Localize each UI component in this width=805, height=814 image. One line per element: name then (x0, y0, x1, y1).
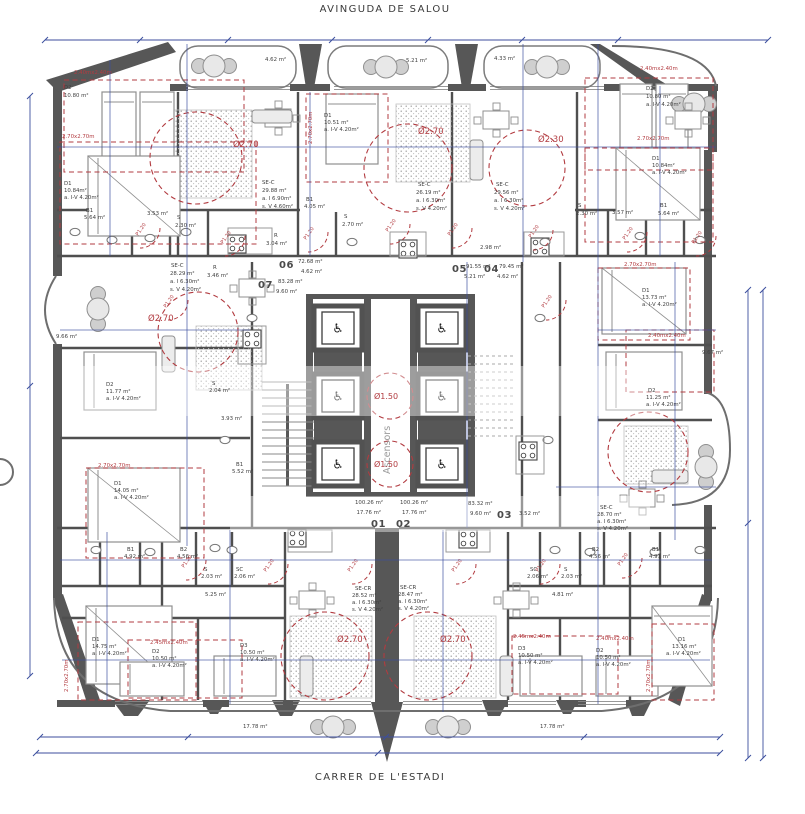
wheelchair-icon: ♿ (332, 321, 343, 336)
room-label: 5.25 m² (205, 591, 226, 598)
red-annotation-label: 2.40mx2.40m (596, 636, 634, 642)
room-label: 9.66 m² (56, 333, 77, 340)
wall (170, 84, 188, 91)
bath-fixture (91, 546, 101, 553)
balcony-curve (0, 459, 13, 485)
room-label: 4.62 m² (497, 273, 518, 280)
red-annotation-label: Ø2.30 (538, 134, 564, 145)
wall (57, 700, 115, 707)
room-label: 5.52 m² (232, 468, 253, 475)
room-label: 9.67 m² (702, 349, 723, 356)
bath-fixture (210, 544, 220, 551)
room-label: D1 (114, 481, 122, 487)
wall (272, 700, 300, 716)
room-label: 83.28 m² (278, 278, 303, 285)
room-label: 5.21 m² (406, 57, 427, 64)
chair (657, 495, 664, 502)
room-label: 4.62 m² (301, 268, 322, 275)
round-table (536, 56, 558, 78)
room-label: S (204, 567, 208, 573)
room-label: s. V 4.20m² (352, 606, 383, 613)
chair (511, 117, 518, 124)
room-label: S (177, 215, 181, 221)
bed (140, 92, 174, 164)
room-label: SE-C (171, 263, 184, 269)
room-label: D2 (596, 648, 604, 654)
room-label: 13.73 m² (642, 294, 667, 301)
room-label: 13.16 m² (672, 643, 697, 650)
room-label: a. I 6.30m² (597, 518, 626, 525)
room-label: 4.56 m² (177, 553, 198, 560)
room-label: 17.76 m² (402, 509, 427, 516)
room-label: 10.84m² (652, 162, 675, 169)
chair (494, 597, 501, 604)
room-label: a. I-V 4.20m² (666, 650, 701, 657)
red-annotation-label: 2.70x2.70m (98, 463, 130, 469)
room-label: a. I 6.30m² (352, 599, 381, 606)
dining-table (503, 591, 529, 609)
chair (290, 597, 297, 604)
room-label: D2 (152, 649, 160, 655)
room-label: 72.68 m² (298, 258, 323, 265)
room-label: 3.52 m² (519, 510, 540, 517)
room-label: SE-C (600, 505, 613, 511)
round-table (87, 298, 109, 320)
clearance-label: P1.20 (622, 226, 635, 241)
clearance-label: P1.20 (447, 222, 460, 237)
bath-fixture (635, 232, 645, 239)
room-label: s. V 4.20m² (597, 525, 628, 532)
room-label: a. I-V 4.20m² (646, 101, 681, 108)
chair (327, 597, 334, 604)
room-label: 5.64 m² (84, 214, 105, 221)
wall (418, 420, 466, 440)
round-table (322, 716, 344, 738)
dining-table (299, 591, 325, 609)
red-annotation-label: 2.40mx2.40m (74, 70, 112, 76)
room-label: B1 (236, 462, 243, 468)
sofa (500, 656, 513, 696)
room-label: SC (530, 567, 537, 573)
dining-table (675, 111, 701, 129)
room-label: a. I-V 4.20m² (518, 659, 553, 666)
sofa (470, 140, 483, 180)
room-label: 29.56 m² (494, 189, 519, 196)
wall (455, 44, 478, 88)
room-label: 100.26 m² (400, 499, 428, 506)
room-label: D2 (106, 382, 114, 388)
room-label: 2.06 m² (527, 573, 548, 580)
clearance-label: P1.20 (541, 294, 554, 309)
room-label: a. I-V 4.20m² (92, 650, 127, 657)
red-annotation-label: Ø2.70 (337, 634, 363, 645)
wall (314, 420, 362, 440)
wall (53, 344, 62, 600)
room-label: B2 (592, 547, 599, 553)
round-table (437, 716, 459, 738)
room-label: 28.47 m² (398, 591, 423, 598)
room-label: a. I-V 4.20m² (652, 169, 687, 176)
room-label: SE-C (262, 180, 275, 186)
room-label: D1 (324, 113, 332, 119)
room-label: 2.30 m² (576, 210, 597, 217)
room-label: D2 (648, 388, 656, 394)
room-label: 5.64 m² (658, 210, 679, 217)
room-label: 28.70 m² (597, 511, 622, 518)
room-label: a. I-V 4.20m² (106, 395, 141, 402)
room-label: 29.88 m² (262, 187, 287, 194)
room-label: 2.98 m² (480, 244, 501, 251)
red-annotation-label: 2.40mx2.40m (640, 66, 678, 72)
room-label: 4.62 m² (265, 56, 286, 63)
chair (230, 285, 237, 292)
room-label: a. I-V 4.20m² (642, 301, 677, 308)
red-annotation-label: 2.70x2.70m (646, 660, 652, 692)
chair (493, 130, 500, 137)
room-label: D1 (652, 156, 660, 162)
chair (493, 103, 500, 110)
wall (306, 294, 475, 299)
room-label: 10.50 m² (596, 654, 621, 661)
dining-table (483, 111, 509, 129)
chair (309, 583, 316, 590)
chair (474, 117, 481, 124)
room-label: a. I 6.30m² (398, 598, 427, 605)
chair (513, 610, 520, 617)
room-label: 3.57 m² (612, 209, 633, 216)
wheelchair-icon: ♿ (332, 457, 343, 472)
room-label: 10.80 m² (64, 92, 89, 99)
room-label: S (564, 567, 568, 573)
room-label: a. I 6.30m² (170, 278, 199, 285)
room-label: a. I 6.90m² (262, 195, 291, 202)
wheelchair-icon: ♿ (436, 321, 447, 336)
room-label: 4.56 m² (589, 553, 610, 560)
wall (704, 150, 712, 394)
round-table (695, 456, 717, 478)
room-label: SE-C (496, 182, 509, 188)
room-label: s. V 4.20m² (494, 205, 525, 212)
red-annotation-label: 2.45mx2.40m (513, 634, 551, 640)
bath-fixture (227, 546, 237, 553)
watermark-wash (80, 366, 660, 416)
room-label: SE-CR (355, 586, 372, 592)
room-label: 3.04 m² (266, 240, 287, 247)
bed (102, 92, 136, 164)
room-label: s. V 4.20m² (416, 205, 447, 212)
room-label: 14.75 m² (92, 643, 117, 650)
unit-number-label: 06 (279, 260, 294, 271)
room-label: a. I-V 4.20m² (324, 126, 359, 133)
room-label: B1 (652, 547, 659, 553)
floor-plan-drawing: ♿♿♿♿♿♿P1.20P1.20P1.20P1.20P1.20P1.20P1.2… (0, 0, 805, 814)
bath-fixture (695, 546, 705, 553)
room-label: R (213, 265, 217, 271)
room-label: a. I-V 4.20m² (152, 662, 187, 669)
room-label: 3.53 m² (147, 210, 168, 217)
room-label: 9.60 m² (470, 510, 491, 517)
clearance-label: P1.20 (163, 294, 176, 309)
clearance-label: P1.20 (303, 226, 316, 241)
red-annotation-label: 2.70x2.70m (62, 134, 94, 140)
room-label: 3.93 m² (221, 415, 242, 422)
sofa (300, 656, 313, 696)
room-label: 4.05 m² (304, 203, 325, 210)
room-label: s. V 4.20m² (170, 286, 201, 293)
bath-fixture (145, 548, 155, 555)
room-label: B2 (180, 547, 187, 553)
chair (531, 597, 538, 604)
room-label: s. V 4.20m² (398, 605, 429, 612)
bath-fixture (220, 436, 230, 443)
red-annotation-label: 2.70x2.70m (64, 660, 70, 692)
room-label: D1 (678, 637, 686, 643)
room-label: 11.77 m² (106, 388, 131, 395)
red-annotation-label: Ø1.50 (374, 459, 398, 469)
room-label: 28.29 m² (170, 270, 195, 277)
room-label: a. I-V 4.20m² (114, 494, 149, 501)
unit-number-label: 03 (497, 510, 512, 521)
room-label: B1 (127, 547, 134, 553)
chair (275, 128, 282, 135)
red-annotation-label: Ø2.70 (148, 313, 174, 324)
clearance-label: P1.20 (385, 218, 398, 233)
room-label: 17.76 m² (356, 509, 381, 516)
bath-fixture (107, 236, 117, 243)
room-label: 3.46 m² (207, 272, 228, 279)
bath-fixture (181, 228, 191, 235)
wall (53, 82, 62, 276)
red-annotation-label: Ø2.70 (233, 139, 259, 150)
round-table (375, 56, 397, 78)
room-label: a. I 6.30m² (416, 197, 445, 204)
wall (482, 700, 508, 716)
rug (414, 616, 496, 698)
chair (275, 101, 282, 108)
room-label: D3 (518, 646, 526, 652)
room-label: a. I-V 4.20m² (64, 194, 99, 201)
room-label: 14.05 m² (114, 487, 139, 494)
room-label: 26.19 m² (416, 189, 441, 196)
room-label: 10.80 m² (646, 93, 671, 100)
red-annotation-label: 2.40mx2.40m (648, 333, 686, 339)
room-label: 17.78 m² (243, 723, 268, 730)
bath-fixture (70, 228, 80, 235)
balcony-curve (45, 276, 56, 344)
room-label: D2 (64, 85, 72, 91)
room-label: 2.70 m² (342, 221, 363, 228)
wall (375, 528, 399, 704)
room-label: 10.50 m² (518, 652, 543, 659)
room-label: 10.51 m² (324, 119, 349, 126)
room-label: 9.60 m² (276, 288, 297, 295)
room-label: D1 (64, 181, 72, 187)
room-label: S (578, 203, 582, 209)
red-annotation-label: 2.70x2.70m (637, 136, 669, 142)
bath-fixture (540, 238, 550, 245)
bath-fixture (145, 234, 155, 241)
wheelchair-icon: ♿ (436, 457, 447, 472)
watermark-wash (230, 496, 650, 532)
room-label: 10.84m² (64, 187, 87, 194)
room-label: 10.50 m² (240, 649, 265, 656)
sofa (252, 110, 292, 123)
room-label: R (274, 233, 278, 239)
unit-number-label: 02 (396, 519, 411, 530)
room-label: S (344, 214, 348, 220)
room-label: a. I-V 4.20m² (240, 656, 275, 663)
unit-number-label: 01 (371, 519, 386, 530)
room-label: 2.06 m² (234, 573, 255, 580)
room-label: 4.92 m² (124, 553, 145, 560)
room-label: 100.26 m² (355, 499, 383, 506)
room-label: 2.30 m² (175, 222, 196, 229)
room-label: a. I 6.30m² (494, 197, 523, 204)
red-annotation-label: 2.70x2.70m (624, 262, 656, 268)
room-label: a. I-V 4.20m² (596, 661, 631, 668)
bath-fixture (550, 546, 560, 553)
bath-fixture (535, 314, 545, 321)
room-label: 5.21 m² (464, 273, 485, 280)
room-label: 17.78 m² (540, 723, 565, 730)
room-label: 10.50 m² (152, 655, 177, 662)
room-label: 79.45 m² (499, 263, 524, 270)
room-label: a. I-V 4.20m² (646, 401, 681, 408)
room-label: SC (236, 567, 243, 573)
room-label: B1 (306, 197, 313, 203)
room-label: SE-CR (400, 585, 417, 591)
room-label: 83.32 m² (468, 500, 493, 507)
bath-fixture (347, 238, 357, 245)
red-annotation-label: Ø2.70 (418, 126, 444, 137)
bath-fixture (247, 314, 257, 321)
round-table (203, 55, 225, 77)
room-label: S (212, 381, 216, 387)
red-annotation-label: Ø2.70 (440, 634, 466, 645)
floorplan-page: { "streets": {"top": "AVINGUDA DE SALOU"… (0, 0, 805, 814)
room-label: s. V 4.60m² (262, 203, 293, 210)
wall (299, 44, 322, 88)
room-label: 2.03 m² (201, 573, 222, 580)
red-annotation-label: Ø1.50 (374, 391, 398, 401)
red-annotation-label: 2.70x2.70m (308, 112, 314, 144)
room-label: D1 (642, 288, 650, 294)
room-label: 4.81 m² (552, 591, 573, 598)
room-label: B1 (660, 203, 667, 209)
room-label: B1 (86, 208, 93, 214)
room-label: SE-C (418, 182, 431, 188)
room-label: D3 (240, 643, 248, 649)
red-annotation-label: 2.45mx2.40m (150, 640, 188, 646)
room-label: 11.25 m² (646, 394, 671, 401)
room-label: 28.52 m² (352, 592, 377, 599)
room-label: 4.91 m² (649, 553, 670, 560)
room-label: 2.04 m² (209, 387, 230, 394)
room-label: D1 (92, 637, 100, 643)
room-label: D2 (646, 86, 654, 92)
rug (396, 104, 470, 182)
unit-number-label: 07 (258, 280, 273, 291)
room-label: 2.03 m² (561, 573, 582, 580)
room-label: 4.33 m² (494, 55, 515, 62)
